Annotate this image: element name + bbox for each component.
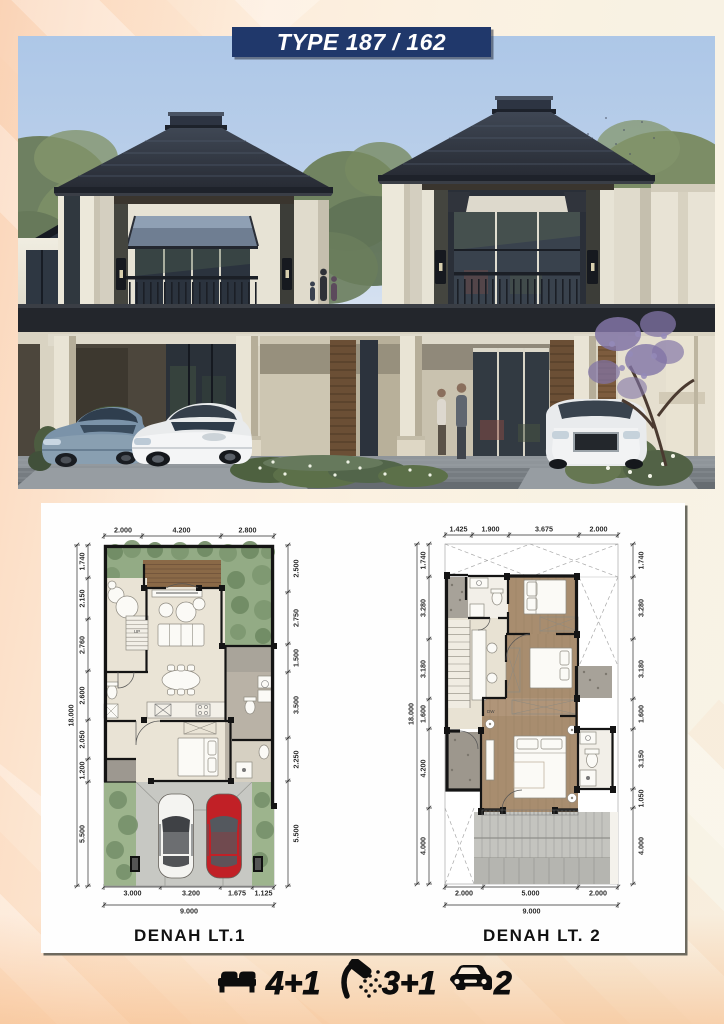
svg-text:1.050: 1.050: [637, 790, 646, 808]
svg-text:1.600: 1.600: [419, 705, 428, 723]
svg-text:3.180: 3.180: [637, 660, 646, 678]
svg-text:1.200: 1.200: [78, 762, 87, 780]
svg-text:2.000: 2.000: [590, 525, 608, 534]
svg-text:1.125: 1.125: [255, 889, 273, 898]
svg-text:2.050: 2.050: [78, 731, 87, 749]
svg-text:UP: UP: [134, 629, 140, 634]
svg-text:2.600: 2.600: [78, 687, 87, 705]
svg-text:18.000: 18.000: [67, 705, 76, 727]
svg-text:3.280: 3.280: [419, 599, 428, 617]
svg-text:4.000: 4.000: [637, 837, 646, 855]
svg-text:9.000: 9.000: [180, 907, 198, 916]
svg-text:1.500: 1.500: [292, 649, 301, 667]
svg-text:2.150: 2.150: [78, 590, 87, 608]
svg-text:1.900: 1.900: [482, 525, 500, 534]
svg-text:3.000: 3.000: [124, 889, 142, 898]
svg-text:3.150: 3.150: [637, 750, 646, 768]
svg-text:3.200: 3.200: [182, 889, 200, 898]
svg-text:3.675: 3.675: [535, 525, 553, 534]
svg-text:18.000: 18.000: [407, 703, 416, 725]
svg-text:3.500: 3.500: [292, 696, 301, 714]
svg-text:1.740: 1.740: [637, 552, 646, 570]
svg-text:1.675: 1.675: [228, 889, 246, 898]
svg-text:4.000: 4.000: [419, 837, 428, 855]
svg-text:2.000: 2.000: [455, 889, 473, 898]
svg-text:2.000: 2.000: [589, 889, 607, 898]
svg-text:2.500: 2.500: [292, 560, 301, 578]
svg-text:1.740: 1.740: [419, 552, 428, 570]
svg-text:1.600: 1.600: [637, 705, 646, 723]
svg-text:2.750: 2.750: [292, 609, 301, 627]
svg-text:DW: DW: [487, 709, 495, 714]
svg-text:3+1: 3+1: [382, 965, 436, 1001]
svg-text:1.425: 1.425: [450, 525, 468, 534]
svg-text:2.000: 2.000: [114, 526, 132, 535]
svg-text:1.740: 1.740: [78, 553, 87, 571]
svg-text:5.000: 5.000: [522, 889, 540, 898]
svg-text:5.500: 5.500: [292, 825, 301, 843]
svg-text:4.200: 4.200: [173, 526, 191, 535]
svg-text:2: 2: [493, 965, 512, 1001]
svg-text:3.280: 3.280: [637, 599, 646, 617]
svg-text:5.500: 5.500: [78, 825, 87, 843]
svg-text:2.760: 2.760: [78, 636, 87, 654]
svg-text:3.180: 3.180: [419, 660, 428, 678]
svg-text:4.200: 4.200: [419, 760, 428, 778]
svg-text:4+1: 4+1: [265, 965, 320, 1001]
svg-text:9.000: 9.000: [523, 907, 541, 916]
svg-text:2.250: 2.250: [292, 751, 301, 769]
svg-text:2.800: 2.800: [239, 526, 257, 535]
